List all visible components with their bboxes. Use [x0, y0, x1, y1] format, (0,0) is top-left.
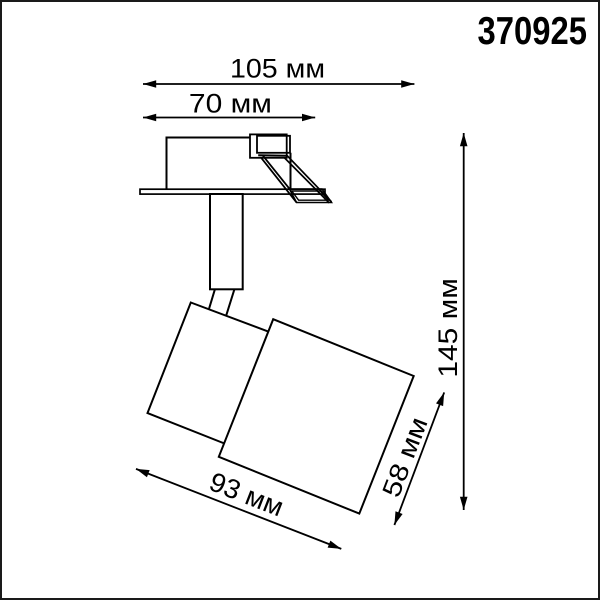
svg-text:370925: 370925: [478, 10, 588, 53]
svg-text:145 мм: 145 мм: [433, 278, 463, 378]
svg-text:70 мм: 70 мм: [189, 88, 272, 118]
svg-text:105 мм: 105 мм: [230, 54, 325, 84]
